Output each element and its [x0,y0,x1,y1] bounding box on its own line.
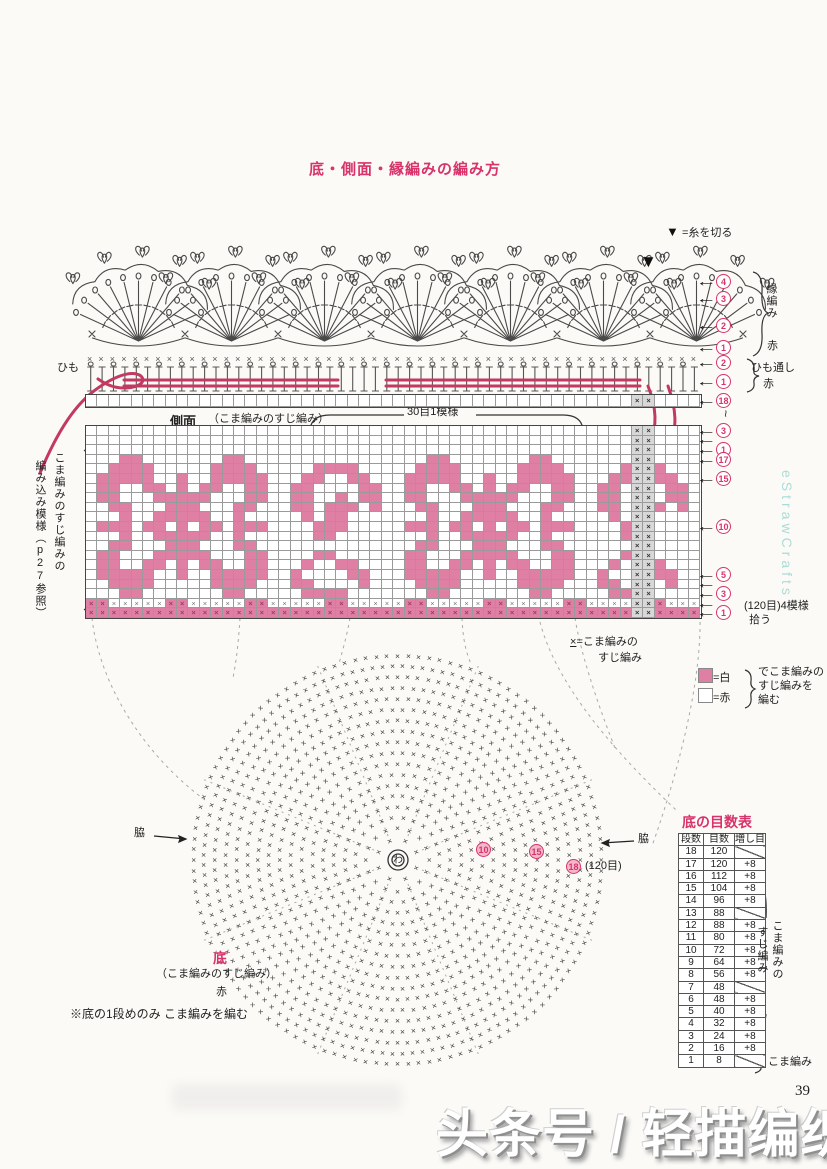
stitch-symbol: × [597,836,605,842]
grid-cell [359,426,370,436]
grid-cell: × [416,599,427,609]
grid-cell [279,512,290,522]
svg-text:×: × [212,354,217,364]
grid-cell [177,570,188,580]
svg-text:×: × [167,354,172,364]
grid-cell [268,512,279,522]
grid-cell [268,560,279,570]
grid-cell: × [86,608,97,618]
grid-cell [416,560,427,570]
grid-cell [541,503,552,513]
grid-cell [575,541,586,551]
grid-cell [268,541,279,551]
table-cell: +8 [735,1018,766,1030]
grid-cell [473,426,484,436]
grid-cell [370,532,381,542]
round10-marker: 10 [476,842,491,857]
grid-cell [450,541,461,551]
grid-cell [348,484,359,494]
grid-cell [370,464,381,474]
grid-cell [279,522,290,532]
grid-cell [564,570,575,580]
grid-cell [359,589,370,599]
grid-cell [291,493,302,503]
grid-cell [302,474,313,484]
grid-cell [268,426,279,436]
arrow-icon: ← [696,451,717,467]
stitch-symbol: × [390,963,395,971]
stitch-symbol: × [341,846,350,852]
svg-text:×: × [360,354,365,364]
stitch-symbol: × [379,706,385,714]
grid-cell [245,512,256,522]
stitch-symbol: × [389,1006,394,1014]
grid-cell [450,474,461,484]
grid-cell [200,551,211,561]
stitch-symbol: × [395,996,400,1004]
grid-cell [518,426,529,436]
white-label: =白 [713,672,730,684]
grid-cell [621,484,632,494]
stitch-symbol: × [329,852,337,858]
table-cell: 5 [679,1006,704,1018]
svg-text:×: × [497,354,502,364]
grid-cell: × [643,541,654,551]
stitch-symbol: × [265,852,273,857]
grid-cell: × [211,599,222,609]
grid-cell: × [518,608,529,618]
grid-cell [382,445,393,455]
grid-cell [518,570,529,580]
grid-cell [257,551,268,561]
grid-cell [166,484,177,494]
grid-cell [575,512,586,522]
grid-cell [302,493,313,503]
grid-cell: × [268,599,279,609]
stitch-symbol: × [254,847,262,853]
grid-cell [564,493,575,503]
grid-cell [427,426,438,436]
grid-cell [370,436,381,446]
grid-cell [609,464,620,474]
stitch-symbol: × [363,697,369,706]
stitch-symbol: × [551,825,560,831]
svg-text:×: × [406,354,411,364]
grid-cell [609,580,620,590]
grid-cell [496,493,507,503]
grid-cell: × [450,608,461,618]
grid-cell [575,455,586,465]
stitch-symbol: × [390,749,395,757]
stitch-symbol: × [509,836,518,842]
grid-cell: × [632,589,643,599]
grid-cell [120,426,131,436]
grid-cell [325,464,336,474]
grid-cell [507,484,518,494]
svg-text:×: × [588,354,593,364]
stitch-symbol: × [565,852,573,857]
grid-cell [348,455,359,465]
stitch-symbol: × [390,920,396,928]
stitch-symbol: × [500,863,508,868]
grid-cell [564,455,575,465]
table-cell: 88 [704,907,735,919]
grid-cell [552,589,563,599]
grid-cell [223,445,234,455]
grid-cell [97,426,108,436]
stitch-symbol: × [200,862,208,867]
grid-cell [530,512,541,522]
grid-cell [143,464,154,474]
grid-cell [177,503,188,513]
grid-cell [86,484,97,494]
grid-cell: × [325,608,336,618]
svg-text:×: × [452,354,457,364]
stitch-symbol: × [400,985,405,993]
grid-cell [507,512,518,522]
grid-cell [518,512,529,522]
grid-cell [268,589,279,599]
grid-cell [86,503,97,513]
table-row: 15104+8 [679,883,766,895]
grid-cell [507,503,518,513]
grid-cell [427,484,438,494]
stitch-symbol: × [395,652,400,660]
table-cell: 120 [704,858,735,870]
grid-cell [655,580,666,590]
grid-cell [359,445,370,455]
grid-cell [507,532,518,542]
grid-cell [188,436,199,446]
grid-cell [439,436,450,446]
grid-cell [177,541,188,551]
stitch-symbol: × [369,1048,375,1057]
stitch-symbol: × [421,708,427,717]
grid-cell [518,455,529,465]
grid-cell [496,580,507,590]
page-title: 底・側面・縁編みの編み方 [309,158,501,179]
grid-cell [154,532,165,542]
grid-cell [223,455,234,465]
grid-cell [177,445,188,455]
pattern-page: ××××××××××××××××××××××××××××××××××××××××… [0,0,827,1169]
grid-cell [245,395,256,407]
grid-cell [496,522,507,532]
grid-cell [587,395,598,407]
grid-cell: × [621,599,632,609]
grid-cell [427,512,438,522]
grid-cell [541,493,552,503]
grid-cell [609,493,620,503]
stitch-symbol: × [479,863,487,868]
grid-cell [382,503,393,513]
stitch-symbol: × [585,832,594,838]
grid-cell [257,532,268,542]
grid-cell [359,503,370,513]
grid-cell [405,589,416,599]
grid-cell [598,522,609,532]
grid-cell [416,426,427,436]
grid-cell [598,436,609,446]
table-cell [735,907,766,919]
stitch-symbol: × [189,868,197,873]
grid-cell [132,580,143,590]
grid-cell [120,532,131,542]
grid-cell: × [439,608,450,618]
grid-cell [473,551,484,561]
stitch-symbol: × [420,1026,426,1035]
grid-cell [564,589,575,599]
grid-cell [234,493,245,503]
stitch-symbol: × [435,863,444,869]
grid-cell [223,532,234,542]
grid-cell [291,474,302,484]
table-bracket-label-1: こま編みの [770,920,783,1020]
grid-cell [552,426,563,436]
grid-cell [473,580,484,590]
stitch-symbol: × [265,842,274,848]
grid-cell [655,464,666,474]
grid-cell: × [109,608,120,618]
grid-cell [496,455,507,465]
stitch-symbol: × [405,717,411,725]
grid-cell [268,474,279,484]
grid-cell [188,580,199,590]
sc-row-symbols: ××××××××××××××××××××××××××××××××××××××××… [87,354,696,364]
grid-cell [587,455,598,465]
grid-cell [552,464,563,474]
grid-cell [382,436,393,446]
grid-cell [325,474,336,484]
grid-cell [609,551,620,561]
grid-cell: × [188,608,199,618]
magic-ring-label: わ [393,854,403,867]
grid-cell [552,551,563,561]
grid-cell [621,589,632,599]
grid-cell [109,484,120,494]
color-legend-red: =赤 [698,688,730,705]
grid-cell: × [643,599,654,609]
grid-cell [609,455,620,465]
grid-cell [541,522,552,532]
grid-cell [97,455,108,465]
grid-cell [279,570,290,580]
grid-cell [166,464,177,474]
row-number-badge: 4 [716,274,731,289]
grid-cell [234,395,245,407]
grid-cell: × [302,608,313,618]
pickup-note-2: 拾う [749,614,771,627]
grid-cell [86,541,97,551]
grid-cell [575,551,586,561]
grid-cell [268,455,279,465]
grid-cell [291,522,302,532]
grid-cell [450,464,461,474]
grid-cell: × [643,589,654,599]
grid-cell [211,541,222,551]
grid-cell [257,426,268,436]
grid-cell [666,484,677,494]
grid-cell [587,512,598,522]
grid-cell [245,464,256,474]
grid-cell [678,580,689,590]
grid-cell [587,560,598,570]
grid-cell [587,445,598,455]
arrow-icon: ← [696,290,717,306]
grid-cell [211,484,222,494]
grid-cell [393,560,404,570]
table-cell: 18 [679,846,704,858]
svg-text:×: × [201,354,206,364]
stitch-symbol: × [405,995,411,1003]
grid-cell [496,426,507,436]
grid-cell [564,551,575,561]
grid-cell [268,532,279,542]
grid-cell [518,522,529,532]
stitch-symbol: × [299,835,308,842]
side-grid-row18: ×× [85,394,702,408]
grid-cell [678,445,689,455]
grid-cell [359,522,370,532]
grid-cell [427,589,438,599]
grid-cell [109,570,120,580]
grid-cell [211,560,222,570]
stitch-symbol: × [573,887,582,893]
table-header: 増し目 [735,834,766,846]
site-watermark: eStrawCrafts [779,470,795,599]
grid-cell [348,541,359,551]
grid-cell [279,484,290,494]
stitch-symbol: × [487,835,496,842]
grid-cell [302,560,313,570]
grid-cell [211,551,222,561]
grid-cell [177,395,188,407]
grid-cell [86,426,97,436]
grid-cell [439,570,450,580]
grid-cell [678,570,689,580]
svg-text:×: × [395,354,400,364]
svg-text:×: × [565,354,570,364]
grid-cell [211,512,222,522]
grid-cell [109,589,120,599]
grid-cell [678,436,689,446]
svg-text:×: × [474,354,479,364]
row-number-badge: 1 [716,374,731,389]
grid-cell [666,522,677,532]
row-number-badge: 1 [716,340,731,355]
grid-cell [132,395,143,407]
grid-cell [370,541,381,551]
grid-cell [211,436,222,446]
table-cell: 16 [679,870,704,882]
grid-cell [120,589,131,599]
stitch-symbol: × [319,858,327,863]
grid-cell [507,455,518,465]
grid-cell [291,551,302,561]
stitch-symbol: × [544,852,552,857]
stitch-symbol: × [379,1005,385,1013]
stitch-symbol: × [400,662,405,670]
row-callout: ←3 [699,290,731,306]
grid-cell [302,445,313,455]
stitch-symbol: × [200,852,208,857]
grid-cell [552,395,563,407]
grid-cell [166,580,177,590]
grid-cell: × [439,599,450,609]
grid-cell [587,541,598,551]
grid-cell [530,522,541,532]
grid-cell [507,541,518,551]
grid-cell [405,445,416,455]
grid-cell: × [393,608,404,618]
grid-cell [336,522,347,532]
grid-cell [405,436,416,446]
grid-cell [541,484,552,494]
grid-cell [120,464,131,474]
stitch-symbol: × [390,684,395,692]
grid-cell [575,395,586,407]
grid-cell [336,503,347,513]
stitch-symbol: × [595,889,604,895]
grid-cell [370,455,381,465]
stitch-symbol: × [384,652,389,660]
grid-cell [382,522,393,532]
grid-cell: × [632,503,643,513]
grid-cell [598,589,609,599]
grid-cell: × [279,599,290,609]
grid-cell [518,484,529,494]
grid-cell [223,395,234,407]
grid-cell [257,445,268,455]
grid-cell [370,474,381,484]
grid-cell [302,580,313,590]
table-row: 18 [679,1055,766,1067]
grid-cell [154,474,165,484]
grid-cell: × [518,599,529,609]
grid-cell [109,455,120,465]
grid-cell [484,522,495,532]
table-cell: 72 [704,944,735,956]
grid-cell [97,474,108,484]
stitch-symbol: × [400,941,405,949]
svg-text:×: × [531,354,536,364]
stitch-symbol: × [477,873,486,879]
grid-cell [393,464,404,474]
grid-cell [200,455,211,465]
grid-cell [450,503,461,513]
grid-cell [234,580,245,590]
grid-cell: × [291,599,302,609]
grid-cell: × [393,599,404,609]
grid-cell [609,541,620,551]
grid-cell [86,445,97,455]
grid-cell: × [632,445,643,455]
grid-cell [552,512,563,522]
grid-cell [552,532,563,542]
grid-cell [223,436,234,446]
grid-cell [86,532,97,542]
stitch-symbol: × [587,852,595,857]
grid-cell [621,503,632,513]
grid-cell [405,503,416,513]
stitch-symbol: × [597,847,605,852]
grid-cell [314,464,325,474]
grid-cell [234,426,245,436]
stitch-symbol: × [395,1017,400,1025]
grid-cell [393,570,404,580]
grid-cell [223,493,234,503]
grid-cell [609,532,620,542]
